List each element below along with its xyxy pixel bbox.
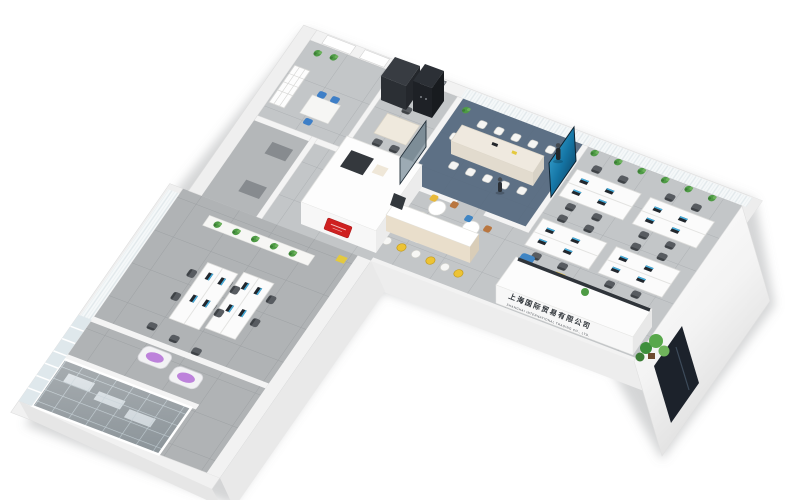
cabinet-handle (420, 96, 422, 98)
desk-plant (581, 288, 589, 296)
person-head (556, 143, 561, 148)
person-shadow (553, 160, 563, 164)
floorplan-render: 上海国际贸易有限公司 SHANGHAI INTERNATIONAL TRADIN… (0, 0, 800, 500)
person-head (498, 177, 502, 181)
plant-foliage (649, 334, 663, 348)
cabinet-handle (425, 98, 427, 100)
planter-pot (648, 353, 655, 359)
render-stage: 上海国际贸易有限公司 SHANGHAI INTERNATIONAL TRADIN… (0, 0, 800, 500)
person-body (498, 182, 502, 192)
plant-foliage (636, 353, 645, 362)
plant-foliage (659, 346, 670, 357)
person-body (556, 148, 561, 160)
